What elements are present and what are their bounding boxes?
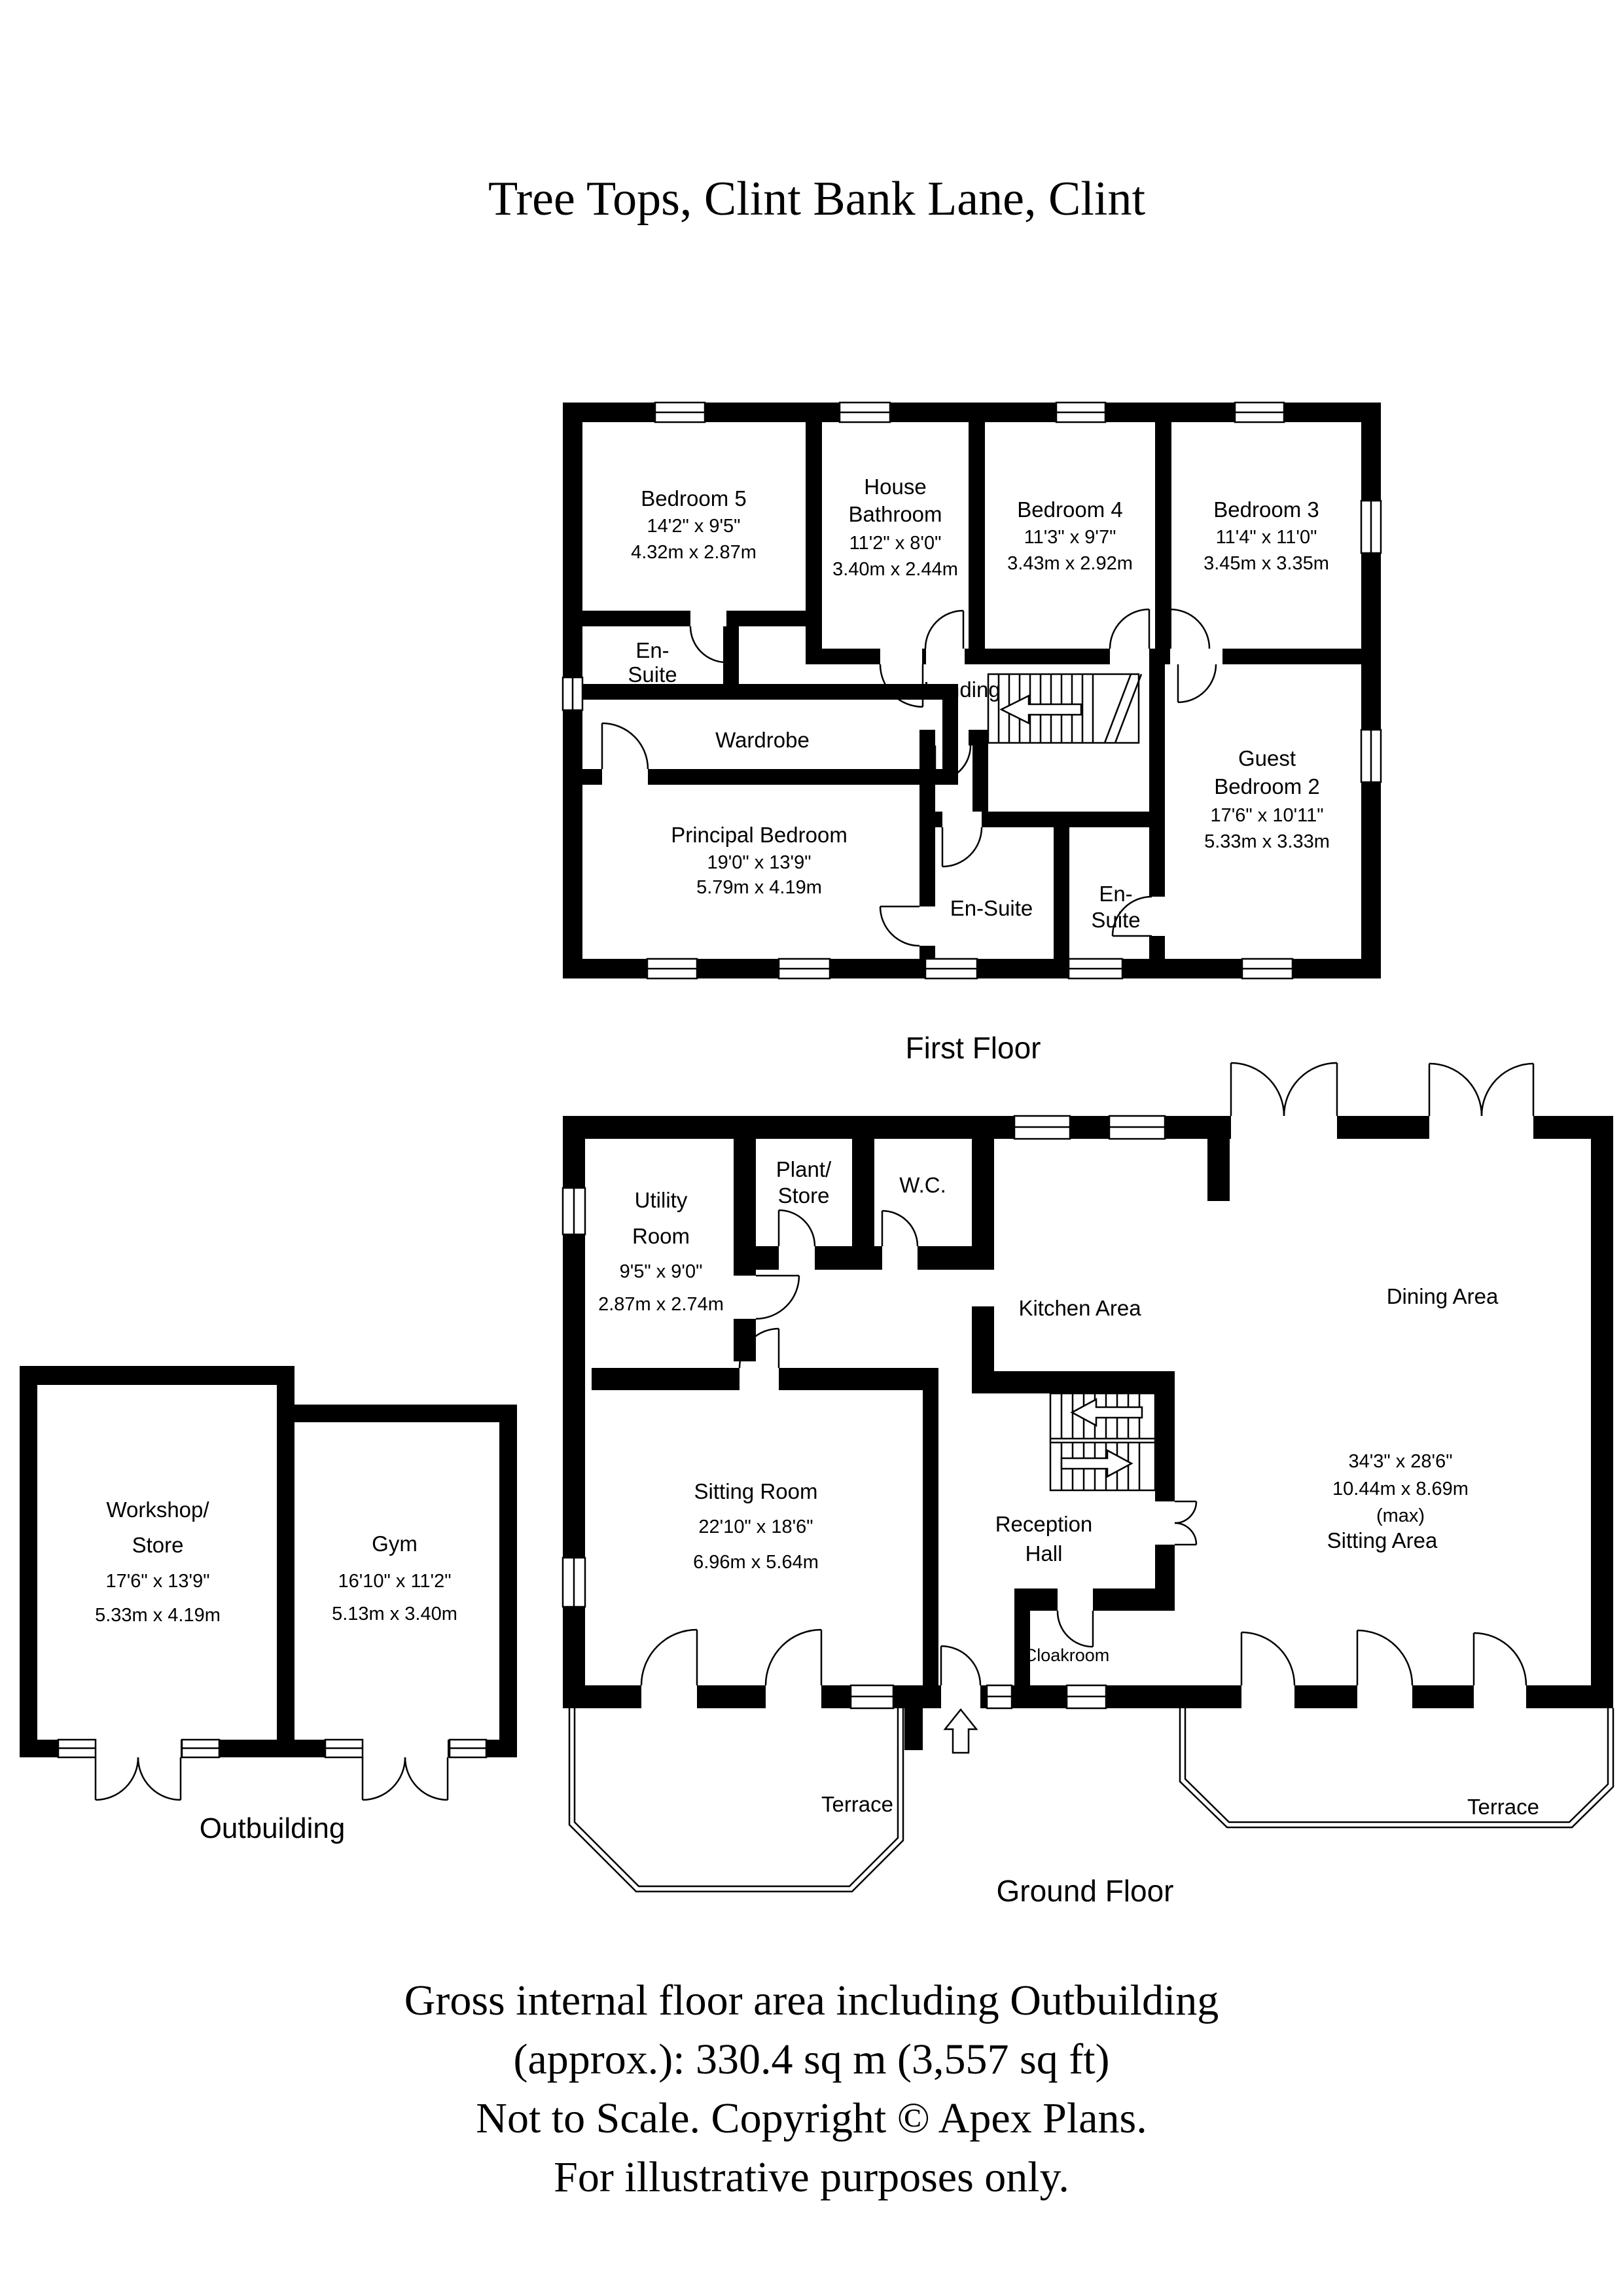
room-label-house-bathroom-1: House: [864, 475, 926, 499]
room-label-ensuite-right-2: Suite: [1091, 908, 1140, 932]
room-dims-note-dining: (max): [1376, 1505, 1425, 1526]
room-label-ensuite-left-2: Suite: [628, 662, 677, 687]
room-dims-m-bedroom3: 3.45m x 3.35m: [1204, 553, 1329, 574]
room-dims-ft-workshop: 17'6" x 13'9": [105, 1571, 209, 1592]
room-dims-m-bedroom5: 4.32m x 2.87m: [631, 542, 757, 563]
room-label-utility-1: Utility: [635, 1188, 688, 1212]
room-label-sitting-area: Sitting Area: [1327, 1528, 1438, 1552]
room-dims-ft-utility: 9'5" x 9'0": [620, 1261, 703, 1282]
outbuilding-plan: Workshop/ Store 17'6" x 13'9" 5.33m x 4.…: [20, 1366, 517, 1844]
first-floor-stairs: [988, 674, 1141, 743]
room-label-principal-bedroom: Principal Bedroom: [671, 823, 847, 847]
room-label-reception-2: Hall: [1026, 1541, 1063, 1566]
room-label-dining: Dining Area: [1387, 1284, 1499, 1308]
room-dims-ft-sitting-room: 22'10" x 18'6": [698, 1516, 813, 1537]
room-dims-ft-principal-bedroom: 19'0" x 13'9": [707, 852, 811, 873]
outbuilding-walls: [20, 1366, 517, 1757]
footer-line-4: For illustrative purposes only.: [554, 2153, 1069, 2201]
room-dims-m-house-bathroom: 3.40m x 2.44m: [832, 559, 958, 580]
room-dims-m-dining: 10.44m x 8.69m: [1332, 1479, 1469, 1499]
room-label-sitting-room: Sitting Room: [694, 1479, 818, 1503]
room-label-workshop-1: Workshop/: [106, 1498, 209, 1522]
room-label-house-bathroom-2: Bathroom: [848, 502, 942, 526]
room-label-terrace-left: Terrace: [821, 1792, 893, 1816]
outbuilding-doors: [96, 1757, 448, 1800]
room-dims-ft-bedroom3: 11'4" x 11'0": [1216, 527, 1317, 548]
room-dims-ft-bedroom5: 14'2" x 9'5": [647, 516, 741, 537]
room-dims-ft-gym: 16'10" x 11'2": [338, 1571, 451, 1592]
room-label-bedroom4: Bedroom 4: [1017, 497, 1122, 522]
room-label-wardrobe: Wardrobe: [715, 728, 810, 752]
first-floor-caption: First Floor: [906, 1031, 1041, 1065]
floorplan-canvas: Tree Tops, Clint Bank Lane, Clint: [0, 0, 1623, 2296]
room-label-wc: W.C.: [899, 1173, 946, 1197]
room-dims-m-bedroom4: 3.43m x 2.92m: [1007, 553, 1133, 574]
room-dims-m-sitting-room: 6.96m x 5.64m: [693, 1552, 819, 1573]
outbuilding-labels: Workshop/ Store 17'6" x 13'9" 5.33m x 4.…: [95, 1498, 457, 1626]
room-label-kitchen: Kitchen Area: [1018, 1296, 1141, 1320]
first-floor-plan: Bedroom 5 14'2" x 9'5" 4.32m x 2.87m Hou…: [563, 403, 1381, 978]
room-label-guest-bedroom2-1: Guest: [1238, 746, 1296, 770]
room-label-landing: Landing: [923, 677, 1000, 702]
outbuilding-caption: Outbuilding: [200, 1812, 346, 1844]
room-label-ensuite-mid: En-Suite: [950, 896, 1033, 920]
page-title: Tree Tops, Clint Bank Lane, Clint: [488, 172, 1146, 226]
stairs-up-arrow-icon: [1072, 1399, 1142, 1426]
room-dims-m-utility: 2.87m x 2.74m: [598, 1294, 724, 1315]
ground-floor-stairs: [1050, 1393, 1155, 1490]
room-label-plant-store-1: Plant/: [776, 1157, 832, 1181]
room-label-ensuite-left-1: En-: [635, 638, 669, 662]
room-dims-m-gym: 5.13m x 3.40m: [332, 1604, 457, 1624]
ground-floor-plan: Utility Room 9'5" x 9'0" 2.87m x 2.74m P…: [563, 1063, 1613, 1892]
room-dims-ft-guest-bedroom2: 17'6" x 10'11": [1210, 805, 1323, 826]
room-label-terrace-right: Terrace: [1467, 1795, 1539, 1819]
footer-line-2: (approx.): 330.4 sq m (3,557 sq ft): [513, 2036, 1109, 2083]
room-dims-ft-house-bathroom: 11'2" x 8'0": [849, 533, 942, 554]
terraces: [569, 1708, 1613, 1892]
room-label-gym: Gym: [372, 1532, 418, 1556]
footer-line-3: Not to Scale. Copyright © Apex Plans.: [476, 2094, 1147, 2142]
room-label-ensuite-right-1: En-: [1099, 882, 1132, 906]
room-label-workshop-2: Store: [132, 1533, 184, 1557]
room-dims-m-guest-bedroom2: 5.33m x 3.33m: [1204, 831, 1330, 852]
footer-text: Gross internal floor area including Outb…: [404, 1977, 1219, 2201]
room-label-reception-1: Reception: [995, 1512, 1093, 1536]
room-label-plant-store-2: Store: [778, 1183, 830, 1208]
room-label-bedroom3: Bedroom 3: [1213, 497, 1319, 522]
entrance-arrow-icon: [945, 1710, 976, 1753]
room-dims-m-workshop: 5.33m x 4.19m: [95, 1605, 221, 1626]
room-dims-m-principal-bedroom: 5.79m x 4.19m: [696, 877, 822, 898]
room-label-guest-bedroom2-2: Bedroom 2: [1214, 774, 1319, 798]
ground-floor-caption: Ground Floor: [996, 1874, 1173, 1908]
room-label-bedroom5: Bedroom 5: [641, 486, 746, 511]
room-dims-ft-bedroom4: 11'3" x 9'7": [1024, 527, 1116, 548]
room-label-utility-2: Room: [632, 1224, 690, 1248]
room-label-cloakroom: Cloakroom: [1024, 1645, 1110, 1665]
room-dims-ft-dining: 34'3" x 28'6": [1348, 1451, 1452, 1472]
footer-line-1: Gross internal floor area including Outb…: [404, 1977, 1219, 2024]
